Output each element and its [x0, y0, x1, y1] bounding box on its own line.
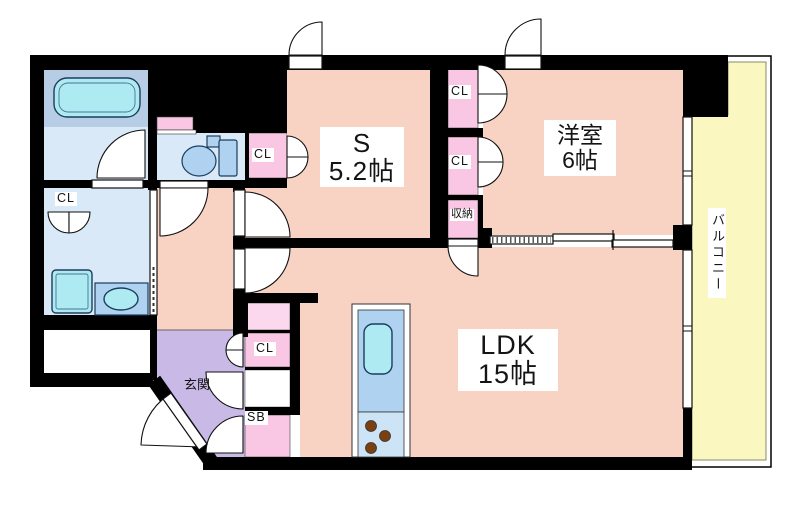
- western-room-name: 洋室: [549, 123, 611, 148]
- toilet-closet-divider: [245, 133, 249, 180]
- entrance-closet-top-section: [245, 303, 290, 330]
- western-room-size: 6帖: [549, 148, 611, 173]
- bottom-wall: [203, 457, 692, 470]
- service-room-label: S 5.2帖: [320, 127, 404, 187]
- washroom-closet-label: CL: [55, 192, 77, 206]
- toilet-shelf: [157, 117, 193, 130]
- service-room-door-leaf: [234, 190, 245, 236]
- washroom-accordion-door: [150, 190, 157, 315]
- ldk-room-label: LDK 15帖: [458, 329, 558, 391]
- toilet-counter: [157, 130, 196, 134]
- partition-rail: [490, 236, 553, 244]
- western-room-window-swing: [505, 19, 541, 55]
- floor-plan-canvas: [0, 0, 800, 513]
- bathtub: [54, 78, 140, 117]
- closet-bottom-wall: [245, 178, 287, 188]
- toilet-bowl: [182, 146, 216, 176]
- service-closet-wall: [430, 55, 448, 238]
- stove-burner-1: [366, 421, 377, 432]
- ldk-balcony-window: [683, 250, 692, 408]
- entrance-closet-top-wall: [245, 293, 318, 303]
- storage-label: 収納: [450, 209, 474, 221]
- entrance-closet-right-wall: [290, 303, 300, 415]
- closet-column-mid-wall: [448, 128, 483, 137]
- floor-plan: S 5.2帖 洋室 6帖 LDK 15帖 玄関 バルコニー CL CL CL C…: [0, 0, 800, 513]
- stove-burner-2: [380, 431, 391, 442]
- service-room-name: S: [324, 129, 400, 157]
- stove-burner-3: [366, 443, 377, 454]
- service-room-window-swing: [289, 22, 322, 55]
- western-closet2-label: CL: [449, 155, 471, 169]
- closet-column-top-wall: [448, 55, 483, 65]
- bathroom-door-leaf: [92, 180, 143, 188]
- left-wall: [30, 55, 44, 387]
- entrance-label: 玄関: [182, 378, 212, 392]
- entrance-closet-thin-divider-1: [245, 330, 290, 333]
- toilet-cistern: [207, 136, 220, 147]
- sliding-panel-1: [553, 234, 614, 241]
- shoe-box-label: SB: [245, 411, 268, 425]
- western-room-label: 洋室 6帖: [544, 120, 616, 176]
- western-room-window-leaf: [505, 56, 541, 69]
- ldk-room-size: 15帖: [464, 360, 552, 389]
- right-wall-mid-chunk: [673, 225, 692, 250]
- ldk-door-leaf: [234, 249, 245, 289]
- closet-column-low-wall: [448, 195, 483, 200]
- balcony-label: バルコニー: [708, 208, 726, 298]
- void-bottom-wall: [30, 373, 153, 387]
- sliding-panel-2: [612, 240, 673, 247]
- entrance-open-shelf: [245, 370, 290, 407]
- washroom-bottom-wall: [44, 315, 153, 330]
- service-room-window-leaf: [289, 56, 322, 69]
- balcony: [692, 62, 766, 460]
- corner-block: [683, 55, 728, 117]
- service-room-size: 5.2帖: [324, 157, 400, 185]
- toilet-tank: [219, 140, 237, 176]
- kitchen-sink: [364, 324, 392, 374]
- entrance-left-wall-stub: [150, 315, 157, 380]
- toilet-door-leaf: [160, 181, 208, 188]
- vanity-basin: [104, 288, 138, 310]
- entrance-closet-label: CL: [254, 342, 276, 356]
- ldk-room-name: LDK: [464, 331, 552, 360]
- entrance-closet-thin-divider-2: [245, 367, 290, 370]
- service-closet-label: CL: [252, 148, 274, 162]
- top-wall: [30, 55, 728, 70]
- washing-machine-pan: [52, 270, 92, 313]
- western-closet1-label: CL: [449, 85, 471, 99]
